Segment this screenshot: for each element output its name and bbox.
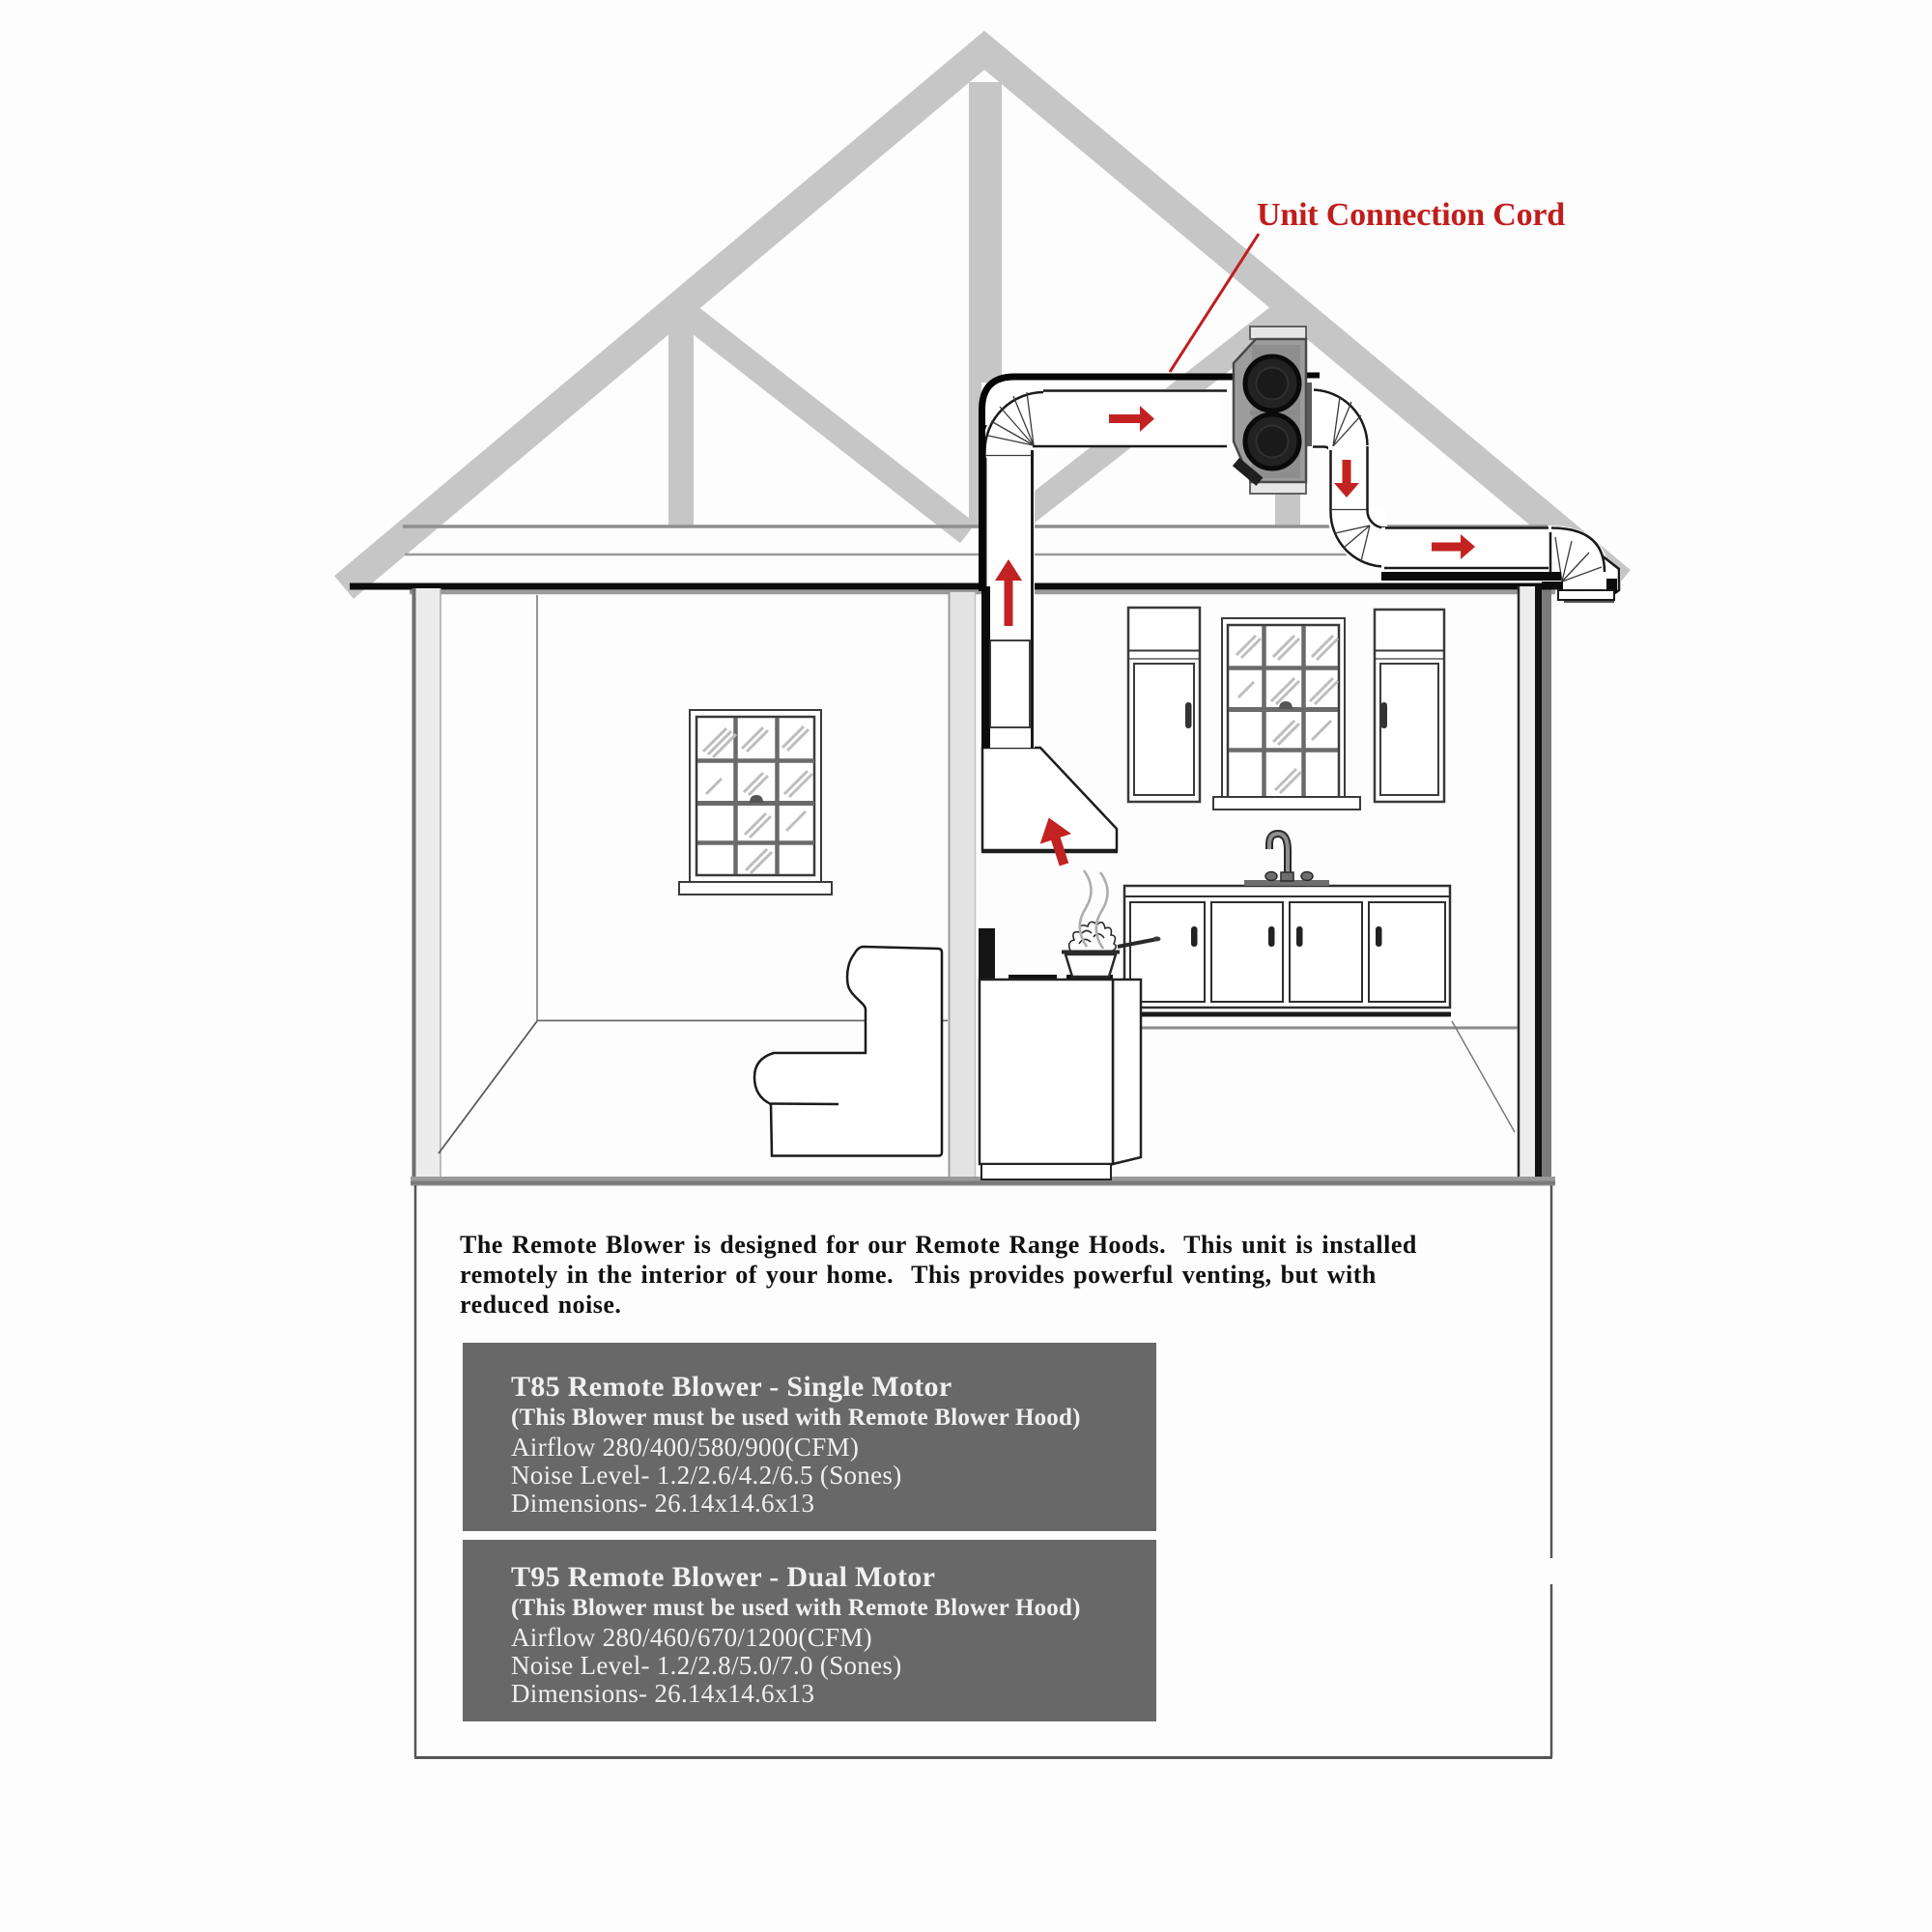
svg-text:Noise Level- 1.2/2.6/4.2/6.5 (: Noise Level- 1.2/2.6/4.2/6.5 (Sones)	[511, 1461, 902, 1490]
svg-text:Dimensions- 26.14x14.6x13: Dimensions- 26.14x14.6x13	[511, 1679, 814, 1708]
svg-text:(This Blower must be used with: (This Blower must be used with Remote Bl…	[511, 1595, 1081, 1621]
svg-text:Airflow 280/460/670/1200(CFM): Airflow 280/460/670/1200(CFM)	[511, 1623, 872, 1652]
svg-text:Unit Connection Cord: Unit Connection Cord	[1257, 197, 1565, 233]
svg-text:reduced noise.: reduced noise.	[460, 1291, 621, 1319]
svg-text:(This Blower must be used with: (This Blower must be used with Remote Bl…	[511, 1405, 1081, 1431]
svg-text:remotely in the interior of yo: remotely in the interior of your home. T…	[460, 1261, 1377, 1289]
svg-text:The Remote Blower is designed: The Remote Blower is designed for our Re…	[460, 1231, 1417, 1259]
svg-text:Noise Level- 1.2/2.8/5.0/7.0 (: Noise Level- 1.2/2.8/5.0/7.0 (Sones)	[511, 1651, 902, 1680]
svg-text:T95 Remote Blower - Dual Motor: T95 Remote Blower - Dual Motor	[511, 1561, 935, 1593]
svg-text:T85 Remote Blower - Single Mot: T85 Remote Blower - Single Motor	[511, 1371, 952, 1403]
svg-text:Airflow 280/400/580/900(CFM): Airflow 280/400/580/900(CFM)	[511, 1433, 859, 1462]
svg-text:Dimensions- 26.14x14.6x13: Dimensions- 26.14x14.6x13	[511, 1489, 814, 1518]
